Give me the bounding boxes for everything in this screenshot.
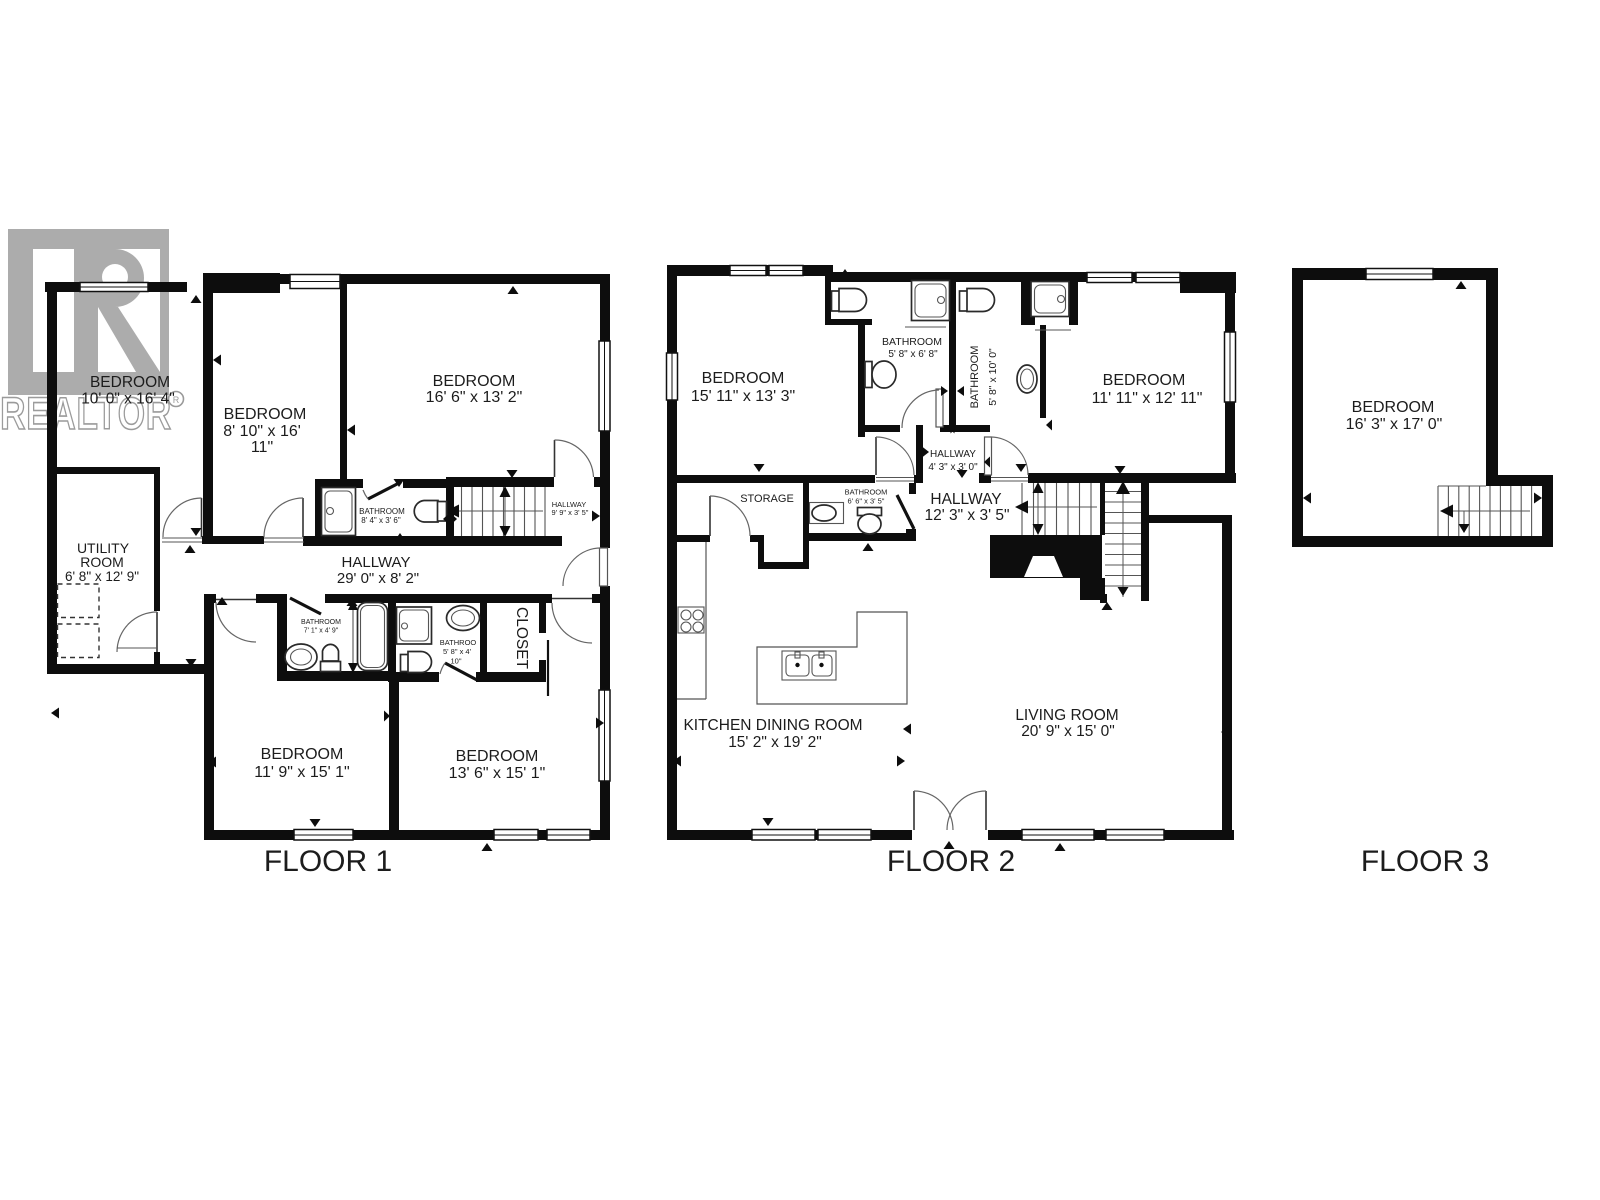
- svg-text:BATHROO: BATHROO: [440, 638, 477, 647]
- svg-text:11' 9" x 15' 1": 11' 9" x 15' 1": [254, 764, 349, 781]
- svg-text:BATHROOM: BATHROOM: [969, 346, 981, 409]
- svg-text:BEDROOM: BEDROOM: [456, 748, 539, 765]
- svg-text:6' 6" x 3' 5": 6' 6" x 3' 5": [848, 497, 885, 506]
- svg-text:FLOOR 1: FLOOR 1: [264, 845, 392, 878]
- svg-text:BEDROOM: BEDROOM: [1103, 372, 1186, 389]
- svg-text:5' 8" x 4': 5' 8" x 4': [443, 647, 472, 656]
- svg-text:12' 3" x 3' 5": 12' 3" x 3' 5": [924, 507, 1009, 524]
- svg-text:13' 6" x 15' 1": 13' 6" x 15' 1": [449, 765, 546, 782]
- svg-text:10": 10": [450, 657, 461, 666]
- svg-text:HALLWAY: HALLWAY: [930, 449, 976, 460]
- svg-text:8' 10" x 16': 8' 10" x 16': [223, 423, 301, 440]
- svg-text:5' 8" x 6' 8": 5' 8" x 6' 8": [888, 349, 938, 360]
- svg-text:BEDROOM: BEDROOM: [1352, 399, 1435, 416]
- svg-text:8' 4" x 3' 6": 8' 4" x 3' 6": [361, 516, 401, 525]
- svg-text:HALLWAY: HALLWAY: [930, 491, 1001, 508]
- svg-text:16' 6" x 13' 2": 16' 6" x 13' 2": [426, 389, 523, 406]
- svg-text:BEDROOM: BEDROOM: [90, 374, 170, 391]
- svg-text:4' 3" x 3' 0": 4' 3" x 3' 0": [928, 462, 978, 473]
- svg-text:11": 11": [251, 439, 273, 456]
- svg-text:BEDROOM: BEDROOM: [261, 746, 344, 763]
- svg-text:CLOSET: CLOSET: [513, 607, 530, 670]
- svg-text:LIVING ROOM: LIVING ROOM: [1015, 707, 1118, 724]
- svg-text:BATHROOM: BATHROOM: [359, 507, 405, 516]
- svg-text:BATHROOM: BATHROOM: [845, 488, 888, 497]
- svg-text:HALLWAY: HALLWAY: [342, 554, 411, 571]
- svg-text:15' 2" x 19' 2": 15' 2" x 19' 2": [728, 734, 822, 751]
- svg-text:BEDROOM: BEDROOM: [433, 373, 516, 390]
- svg-text:5' 8" x 10' 0": 5' 8" x 10' 0": [987, 348, 999, 406]
- svg-text:BEDROOM: BEDROOM: [702, 370, 785, 387]
- svg-text:6' 8" x 12' 9": 6' 8" x 12' 9": [65, 569, 139, 584]
- svg-text:15' 11" x 13' 3": 15' 11" x 13' 3": [691, 388, 795, 405]
- svg-text:10' 0" x 16' 4": 10' 0" x 16' 4": [81, 391, 175, 408]
- svg-text:KITCHEN DINING ROOM: KITCHEN DINING ROOM: [683, 717, 862, 734]
- svg-text:STORAGE: STORAGE: [740, 493, 794, 505]
- svg-text:FLOOR 2: FLOOR 2: [887, 845, 1015, 878]
- svg-text:BATHROOM: BATHROOM: [301, 619, 341, 626]
- svg-text:11' 11" x 12' 11": 11' 11" x 12' 11": [1092, 390, 1203, 407]
- svg-text:16' 3" x 17' 0": 16' 3" x 17' 0": [1346, 416, 1443, 433]
- svg-text:BEDROOM: BEDROOM: [224, 406, 307, 423]
- svg-text:9' 9" x 3' 5": 9' 9" x 3' 5": [552, 508, 589, 517]
- svg-text:ROOM: ROOM: [80, 554, 124, 570]
- svg-text:FLOOR 3: FLOOR 3: [1361, 845, 1489, 878]
- svg-text:7' 1" x 4' 9": 7' 1" x 4' 9": [304, 628, 339, 635]
- svg-text:20' 9" x 15' 0": 20' 9" x 15' 0": [1021, 723, 1115, 740]
- svg-text:29' 0" x 8' 2": 29' 0" x 8' 2": [337, 570, 419, 587]
- svg-text:BATHROOM: BATHROOM: [882, 336, 942, 348]
